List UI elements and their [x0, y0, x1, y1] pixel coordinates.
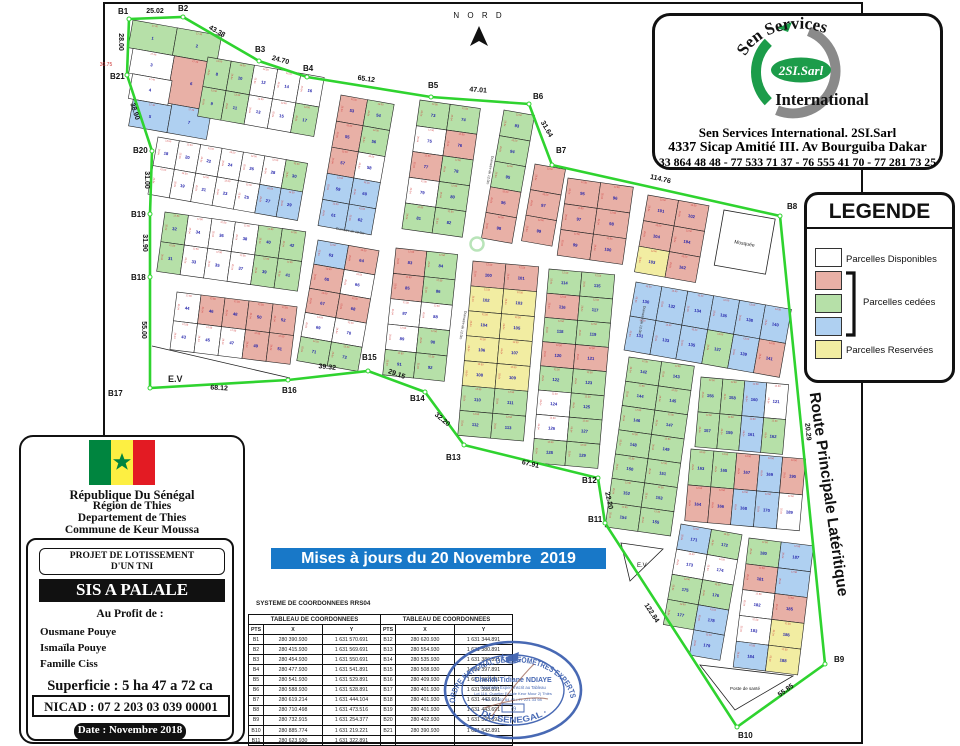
svg-text:126: 126 [548, 425, 556, 431]
svg-text:170: 170 [763, 507, 771, 513]
svg-text:25.04: 25.04 [759, 470, 763, 477]
svg-text:25.04: 25.04 [493, 423, 497, 430]
svg-text:162: 162 [769, 434, 777, 440]
svg-text:31.90: 31.90 [141, 234, 148, 252]
svg-text:24.70: 24.70 [271, 55, 290, 66]
svg-text:25.04: 25.04 [733, 504, 737, 511]
svg-text:145: 145 [669, 398, 677, 404]
svg-text:184: 184 [747, 653, 755, 659]
svg-text:B16: B16 [282, 386, 297, 395]
svg-text:B3: B3 [255, 45, 266, 54]
svg-text:12.50: 12.50 [595, 274, 602, 278]
svg-text:12.50: 12.50 [508, 391, 515, 395]
svg-text:113: 113 [505, 425, 513, 431]
svg-text:B7: B7 [556, 146, 567, 155]
svg-text:12.50: 12.50 [486, 263, 493, 267]
svg-text:164: 164 [694, 501, 702, 507]
svg-text:25.04: 25.04 [567, 451, 571, 458]
svg-text:12.50: 12.50 [480, 338, 487, 342]
svg-text:143: 143 [672, 373, 680, 379]
svg-text:25.04: 25.04 [720, 428, 724, 435]
svg-text:12.50: 12.50 [560, 295, 567, 299]
svg-text:187: 187 [792, 554, 800, 560]
svg-text:12.50: 12.50 [562, 271, 569, 275]
svg-text:E.V: E.V [168, 374, 183, 384]
svg-text:25.04: 25.04 [537, 423, 541, 430]
svg-text:12.50: 12.50 [771, 419, 778, 423]
svg-text:108: 108 [476, 372, 484, 378]
svg-text:154: 154 [619, 514, 627, 520]
svg-text:Cheikh Tidiane NDIAYE: Cheikh Tidiane NDIAYE [474, 677, 552, 684]
svg-text:189: 189 [786, 509, 794, 515]
svg-text:25.04: 25.04 [576, 354, 580, 361]
svg-text:25.04: 25.04 [549, 278, 553, 285]
svg-text:2SI.Sarl: 2SI.Sarl [778, 63, 824, 78]
svg-text:12.50: 12.50 [477, 363, 484, 367]
svg-text:148: 148 [630, 442, 638, 448]
svg-text:118: 118 [557, 329, 565, 335]
svg-text:107: 107 [511, 350, 519, 356]
svg-text:B18: B18 [131, 273, 146, 282]
svg-text:110: 110 [474, 397, 482, 403]
svg-text:120: 120 [554, 353, 562, 359]
svg-text:167: 167 [743, 469, 751, 475]
svg-text:129: 129 [579, 452, 587, 458]
svg-text:119: 119 [589, 331, 597, 337]
svg-text:12.50: 12.50 [547, 441, 554, 445]
svg-text:25.04: 25.04 [543, 351, 547, 358]
svg-text:117: 117 [592, 307, 600, 313]
svg-text:B2: B2 [178, 4, 189, 13]
svg-text:12.50: 12.50 [768, 457, 775, 461]
svg-text:12.50: 12.50 [506, 415, 513, 419]
svg-text:12.50: 12.50 [791, 459, 798, 463]
svg-text:25.04: 25.04 [534, 448, 538, 455]
svg-text:116: 116 [559, 304, 567, 310]
svg-text:E.V: E.V [637, 563, 647, 569]
svg-text:103: 103 [515, 300, 523, 306]
svg-text:168: 168 [740, 505, 748, 511]
svg-text:25.04: 25.04 [714, 466, 718, 473]
svg-text:B4: B4 [303, 64, 314, 73]
svg-text:32.20: 32.20 [433, 412, 451, 429]
svg-text:12.50: 12.50 [519, 266, 526, 270]
svg-text:28.00: 28.00 [117, 33, 124, 51]
svg-text:152: 152 [623, 490, 631, 496]
svg-text:12.50: 12.50 [475, 388, 482, 392]
svg-text:25.04: 25.04 [569, 426, 573, 433]
svg-text:12.50: 12.50 [554, 368, 561, 372]
svg-text:39.32: 39.32 [318, 363, 336, 372]
svg-text:12.50: 12.50 [745, 455, 752, 459]
svg-text:12.50: 12.50 [706, 414, 713, 418]
svg-text:151: 151 [659, 470, 667, 476]
svg-text:105: 105 [513, 325, 521, 331]
svg-text:160: 160 [751, 397, 759, 403]
svg-text:55.85: 55.85 [777, 683, 795, 699]
svg-text:25.04: 25.04 [756, 506, 760, 513]
svg-text:12.50: 12.50 [722, 453, 729, 457]
svg-text:International: International [775, 90, 869, 109]
svg-text:183: 183 [750, 628, 758, 634]
svg-text:25.04: 25.04 [547, 302, 551, 309]
svg-text:12.50: 12.50 [558, 320, 565, 324]
svg-text:B13: B13 [446, 453, 461, 462]
svg-text:185: 185 [786, 606, 794, 612]
svg-text:25.04: 25.04 [504, 298, 508, 305]
svg-text:25.04: 25.04 [782, 472, 786, 479]
svg-text:181: 181 [757, 576, 765, 582]
svg-text:B14: B14 [410, 394, 425, 403]
svg-text:25.04: 25.04 [502, 323, 506, 330]
svg-text:114.76: 114.76 [649, 174, 671, 186]
svg-text:109: 109 [509, 375, 517, 381]
svg-text:153: 153 [655, 495, 663, 501]
svg-text:25.04: 25.04 [464, 370, 468, 377]
svg-text:12.50: 12.50 [582, 419, 589, 423]
svg-text:B12: B12 [582, 476, 597, 485]
svg-text:112: 112 [472, 422, 480, 428]
svg-text:101: 101 [517, 275, 525, 281]
svg-text:25.04: 25.04 [469, 320, 473, 327]
svg-text:12.50: 12.50 [742, 491, 749, 495]
svg-text:12.50: 12.50 [727, 415, 734, 419]
svg-text:146: 146 [633, 417, 641, 423]
svg-text:12.50: 12.50 [696, 487, 703, 491]
svg-text:12.50: 12.50 [510, 366, 517, 370]
svg-text:12.50: 12.50 [591, 322, 598, 326]
svg-text:12.50: 12.50 [788, 495, 795, 499]
svg-text:122: 122 [552, 377, 560, 383]
svg-text:158: 158 [729, 395, 737, 401]
svg-text:100: 100 [485, 272, 493, 278]
svg-text:12.50: 12.50 [765, 493, 772, 497]
svg-text:150: 150 [626, 466, 634, 472]
svg-text:25.04: 25.04 [545, 327, 549, 334]
svg-text:12.50: 12.50 [593, 298, 600, 302]
svg-text:121: 121 [772, 399, 780, 405]
svg-text:25.04: 25.04 [779, 508, 783, 515]
svg-text:25.04: 25.04 [745, 395, 749, 402]
svg-text:128: 128 [546, 450, 554, 456]
svg-text:47.01: 47.01 [469, 86, 487, 94]
svg-text:B9: B9 [834, 655, 845, 664]
svg-text:25.04: 25.04 [742, 430, 746, 437]
svg-text:12.50: 12.50 [752, 383, 759, 387]
svg-text:25.04: 25.04 [462, 395, 466, 402]
svg-text:106: 106 [478, 347, 486, 353]
svg-text:163: 163 [697, 465, 705, 471]
svg-text:121: 121 [587, 355, 595, 361]
svg-text:25.04: 25.04 [582, 281, 586, 288]
svg-text:12.50: 12.50 [552, 392, 559, 396]
svg-text:12.50: 12.50 [587, 371, 594, 375]
svg-text:B15: B15 [362, 353, 377, 362]
svg-text:31.00: 31.00 [143, 171, 150, 189]
svg-text:180: 180 [760, 550, 768, 556]
svg-text:12.50: 12.50 [584, 395, 591, 399]
svg-text:B19: B19 [131, 210, 146, 219]
svg-text:123: 123 [585, 380, 593, 386]
svg-text:144: 144 [636, 393, 644, 399]
svg-text:Lot 116, Quartier Escale Keur: Lot 116, Quartier Escale Keur Mour 2| Th… [474, 691, 552, 696]
svg-text:111: 111 [507, 400, 515, 406]
svg-text:25.04: 25.04 [574, 378, 578, 385]
svg-text:157: 157 [704, 428, 712, 434]
svg-text:B10: B10 [738, 731, 753, 740]
svg-text:149: 149 [662, 446, 670, 452]
svg-text:156: 156 [707, 393, 715, 399]
svg-text:115: 115 [594, 283, 602, 289]
svg-text:12.50: 12.50 [556, 344, 563, 348]
svg-text:68.12: 68.12 [210, 385, 228, 393]
svg-text:12.50: 12.50 [589, 347, 596, 351]
svg-text:25.04: 25.04 [467, 345, 471, 352]
svg-text:169: 169 [766, 471, 774, 477]
svg-text:12.50: 12.50 [473, 413, 480, 417]
svg-text:12.50: 12.50 [731, 381, 738, 385]
svg-text:25.04: 25.04 [541, 375, 545, 382]
svg-text:25.04: 25.04 [539, 399, 543, 406]
svg-text:65.12: 65.12 [357, 75, 375, 84]
svg-text:159: 159 [726, 430, 734, 436]
svg-text:182: 182 [753, 602, 761, 608]
svg-text:55.00: 55.00 [140, 321, 147, 339]
svg-text:25.04: 25.04 [580, 305, 584, 312]
svg-text:104: 104 [480, 322, 488, 328]
svg-text:12.50: 12.50 [517, 291, 524, 295]
svg-text:Poste de santé: Poste de santé [730, 686, 761, 691]
svg-text:B8: B8 [787, 202, 798, 211]
svg-text:B17: B17 [108, 389, 123, 398]
svg-text:124: 124 [550, 401, 558, 407]
svg-text:25.04: 25.04 [710, 502, 714, 509]
svg-text:N O R D: N O R D [453, 11, 504, 20]
svg-text:B6: B6 [533, 92, 544, 101]
svg-text:12.50: 12.50 [512, 341, 519, 345]
svg-text:142: 142 [640, 369, 648, 375]
svg-text:B5: B5 [428, 81, 439, 90]
svg-text:161: 161 [747, 432, 755, 438]
svg-text:125: 125 [583, 404, 591, 410]
svg-text:25.02: 25.02 [146, 8, 164, 15]
svg-text:12.50: 12.50 [749, 417, 756, 421]
svg-text:12.50: 12.50 [699, 451, 706, 455]
svg-text:25.04: 25.04 [572, 402, 576, 409]
svg-text:25.04: 25.04 [763, 432, 767, 439]
svg-text:12.50: 12.50 [774, 384, 781, 388]
svg-text:25.04: 25.04 [495, 398, 499, 405]
svg-text:25.04: 25.04 [578, 330, 582, 337]
svg-text:25.04: 25.04 [691, 464, 695, 471]
svg-text:25.04: 25.04 [506, 273, 510, 280]
svg-text:114: 114 [561, 280, 569, 286]
svg-text:B21: B21 [110, 72, 125, 81]
svg-text:12.50: 12.50 [719, 489, 726, 493]
svg-text:B11: B11 [588, 515, 603, 524]
svg-text:25.04: 25.04 [688, 500, 692, 507]
svg-text:155: 155 [652, 519, 660, 525]
svg-text:25.04: 25.04 [500, 348, 504, 355]
svg-text:190: 190 [789, 473, 797, 479]
svg-text:B1: B1 [118, 7, 129, 16]
svg-text:188: 188 [779, 657, 787, 663]
svg-text:25.04: 25.04 [723, 394, 727, 401]
svg-text:25.04: 25.04 [497, 373, 501, 380]
svg-text:166: 166 [717, 503, 725, 509]
svg-text:12.50: 12.50 [580, 444, 587, 448]
svg-text:25.04: 25.04 [766, 397, 770, 404]
svg-text:12.50: 12.50 [549, 416, 556, 420]
svg-text:12.50: 12.50 [515, 316, 522, 320]
svg-text:Route Principale Latéritique: Route Principale Latéritique [806, 391, 852, 598]
svg-text:25.04: 25.04 [471, 296, 475, 303]
svg-text:165: 165 [720, 467, 728, 473]
svg-text:12.50: 12.50 [482, 313, 489, 317]
svg-text:12.50: 12.50 [709, 379, 716, 383]
svg-text:127: 127 [581, 428, 589, 434]
svg-text:79: 79 [510, 707, 516, 713]
svg-text:186: 186 [783, 632, 791, 638]
svg-text:25.04: 25.04 [460, 420, 464, 427]
svg-text:12.50: 12.50 [484, 288, 491, 292]
svg-text:25.04: 25.04 [737, 468, 741, 475]
svg-text:25.04: 25.04 [698, 426, 702, 433]
svg-text:30.75: 30.75 [100, 62, 113, 68]
svg-text:25.04: 25.04 [701, 392, 705, 399]
svg-text:B20: B20 [133, 146, 148, 155]
svg-text:Diametre de 12.0m: Diametre de 12.0m [458, 311, 467, 340]
svg-text:147: 147 [666, 422, 674, 428]
svg-text:100: 100 [604, 247, 612, 253]
svg-text:102: 102 [482, 297, 490, 303]
svg-text:25.04: 25.04 [473, 271, 477, 278]
